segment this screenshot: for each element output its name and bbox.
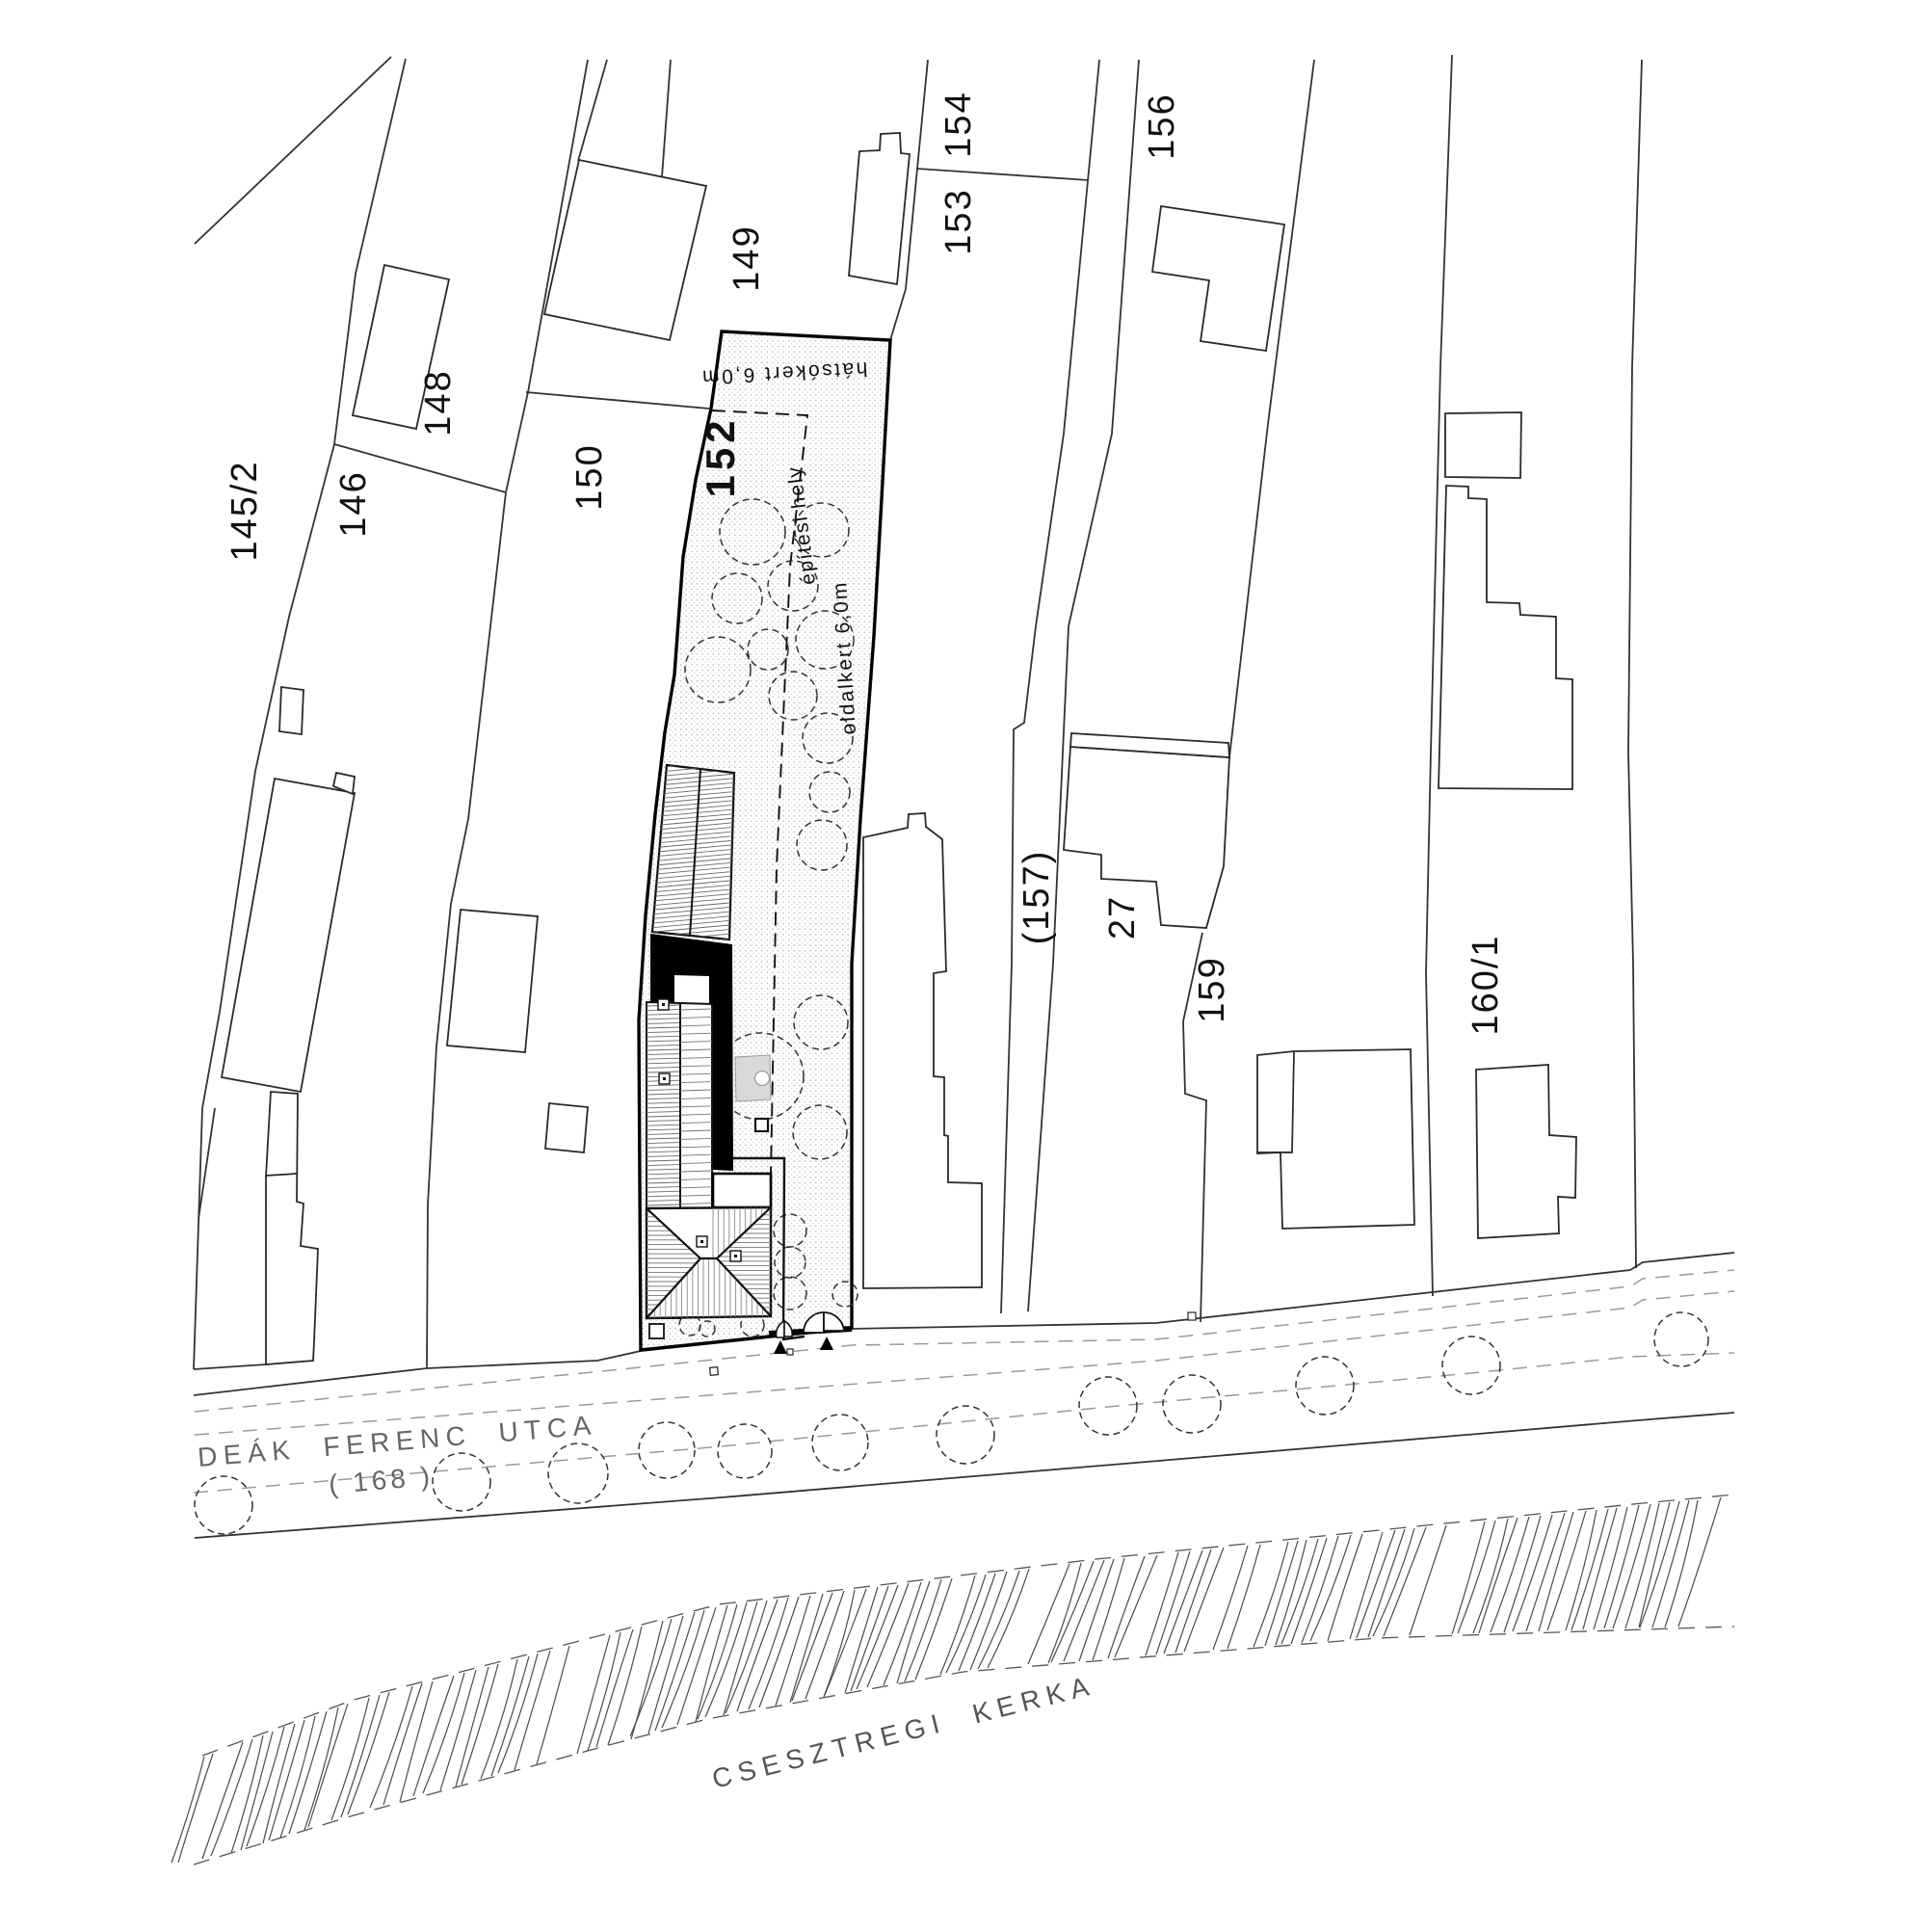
svg-text:160/1: 160/1 xyxy=(1465,934,1506,1035)
svg-text:150: 150 xyxy=(569,443,610,510)
svg-text:( 168 ): ( 168 ) xyxy=(328,1461,435,1499)
svg-text:153: 153 xyxy=(938,188,979,254)
svg-text:(157): (157) xyxy=(1016,850,1057,945)
svg-text:148: 148 xyxy=(418,369,459,436)
svg-text:156: 156 xyxy=(1142,93,1182,159)
svg-text:152: 152 xyxy=(698,415,743,497)
svg-text:CSESZTREGI KERKA: CSESZTREGI KERKA xyxy=(709,1670,1098,1794)
svg-text:149: 149 xyxy=(726,225,767,291)
svg-text:159: 159 xyxy=(1192,956,1232,1022)
svg-text:145/2: 145/2 xyxy=(224,460,265,561)
svg-text:154: 154 xyxy=(938,91,979,157)
svg-text:146: 146 xyxy=(333,470,374,537)
svg-text:27: 27 xyxy=(1102,895,1143,940)
